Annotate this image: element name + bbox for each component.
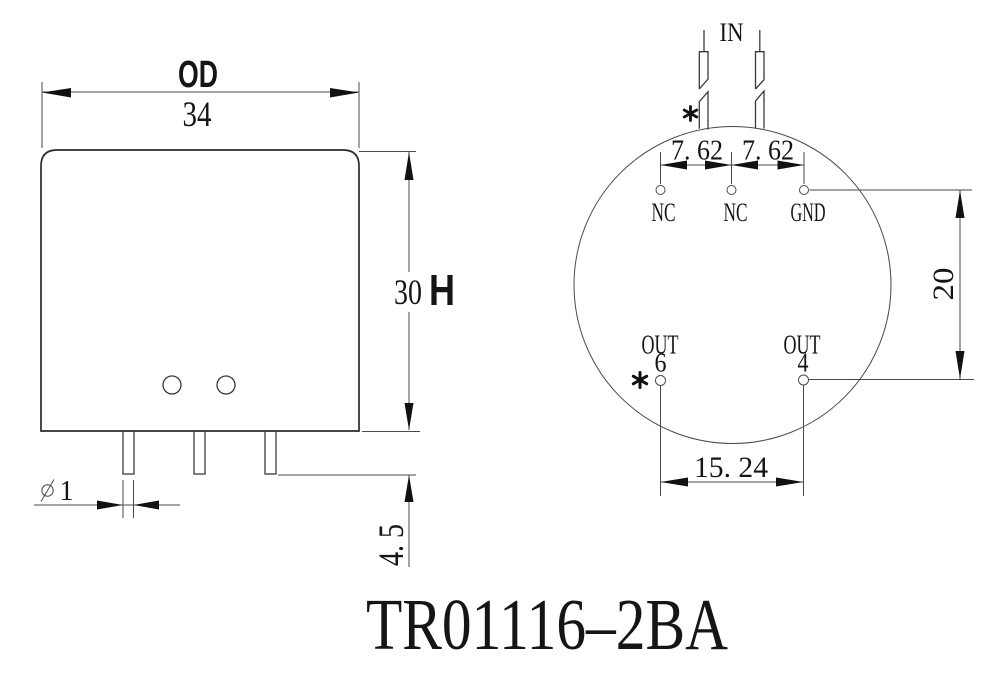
svg-text:7. 62: 7. 62 [742,136,794,167]
svg-text:15. 24: 15. 24 [694,451,768,484]
svg-text:20: 20 [927,268,960,301]
svg-text:6: 6 [655,348,667,378]
svg-text:GND: GND [791,198,826,227]
svg-text:NC: NC [724,198,748,227]
svg-text:OD: OD [178,54,218,96]
svg-text:TR01116–2BA: TR01116–2BA [366,584,728,665]
svg-text:30: 30 [394,272,422,312]
svg-text:1: 1 [60,476,74,507]
svg-text:IN: IN [720,18,744,47]
svg-text:7. 62: 7. 62 [671,136,723,167]
svg-text:34: 34 [183,94,212,134]
svg-text:NC: NC [652,198,676,227]
svg-text:4. 5: 4. 5 [371,524,411,566]
svg-text:H: H [429,266,455,315]
svg-text:4: 4 [798,348,809,378]
